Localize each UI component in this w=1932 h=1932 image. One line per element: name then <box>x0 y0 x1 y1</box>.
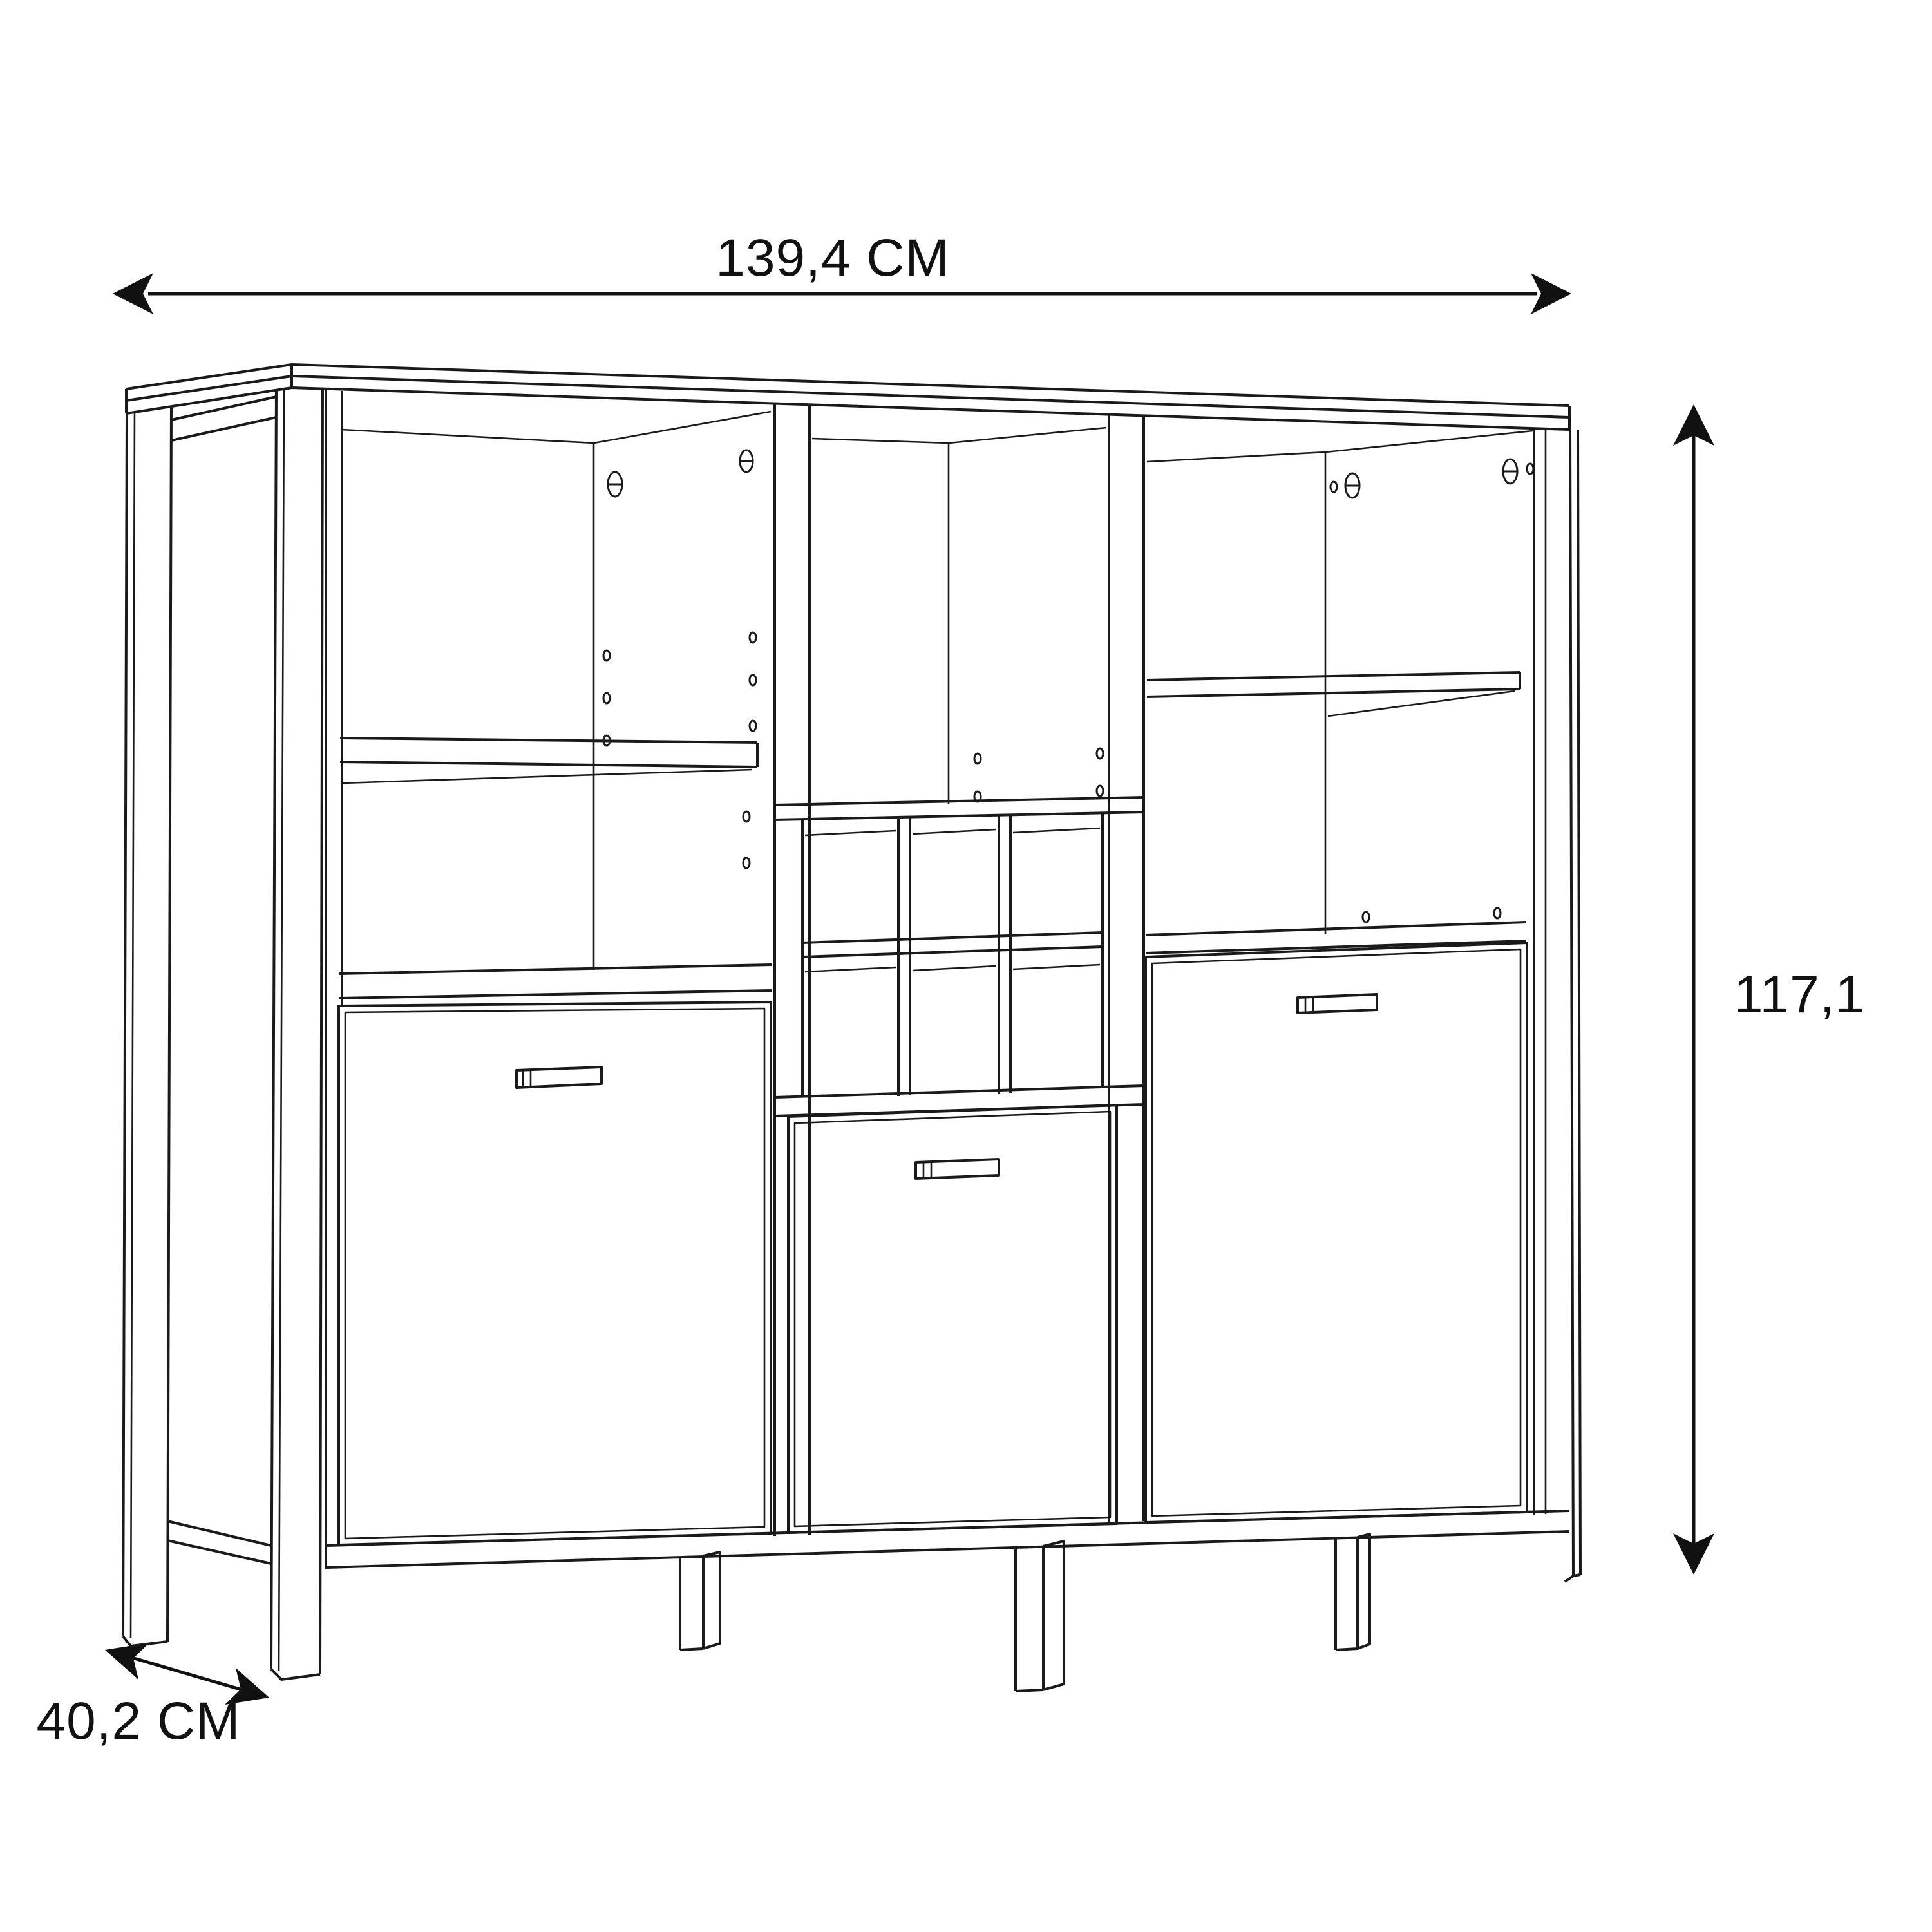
left-bottom-board-bottom <box>339 990 772 998</box>
foot-middle <box>1016 1541 1064 1691</box>
shelf-pin-hole <box>1331 482 1337 492</box>
cabinet-dimension-drawing: 139,4 CM 117,1 40,2 CM <box>0 0 1932 1932</box>
width-arrow-left-icon <box>113 273 153 314</box>
rack-cell-back-edge <box>805 967 896 972</box>
rack-middle-shelf-bottom <box>802 947 1103 957</box>
rack-cell-back-edge <box>1013 965 1100 969</box>
middle-door <box>788 1105 1117 1533</box>
right-side-foot <box>1565 1575 1580 1582</box>
left-shelf-top-edge <box>340 738 757 743</box>
frame-top-rail-upper <box>171 397 276 420</box>
rack-bottom-board-top <box>775 1086 1144 1097</box>
middle-compartment <box>812 428 1106 804</box>
shelf-pin-hole <box>1097 786 1103 796</box>
shelf-pin-hole <box>974 753 981 764</box>
foot-side-face <box>703 1552 720 1649</box>
right-shelf-top-edge <box>1147 672 1520 680</box>
left-door-inner-edge <box>345 1009 764 1539</box>
depth-dimension: 40,2 CM <box>37 1643 269 1750</box>
height-dimension: 117,1 <box>1673 404 1865 1575</box>
shelf-pin-hole <box>603 693 610 703</box>
frame-bottom-rail-lower <box>167 1540 271 1564</box>
handle-bar <box>916 1159 999 1179</box>
width-arrow-right-icon <box>1531 273 1571 314</box>
right-side-outer-back <box>1578 430 1580 1575</box>
shelf-pin-hole <box>750 675 756 685</box>
shelf-pin-hole <box>1097 748 1103 759</box>
rack-cell-back-edge <box>913 966 996 971</box>
left-compartment-back-top-edge <box>341 430 594 443</box>
left-frame <box>123 389 323 1680</box>
front-left-post-corner-edge <box>279 390 284 1671</box>
shelf-pin-hole <box>743 811 750 822</box>
frame-top-rail-lower <box>171 417 276 440</box>
right-door <box>1146 943 1527 1522</box>
foot-bottom <box>1016 1690 1043 1691</box>
left-door-handle <box>516 1067 601 1088</box>
right-door-outline <box>1146 943 1527 1522</box>
shelf-pin-hole <box>1363 912 1369 922</box>
foot-bottom <box>1336 1649 1358 1650</box>
depth-dimension-label: 40,2 CM <box>37 1692 241 1750</box>
rack-cell-back-edge <box>913 829 996 834</box>
right-shelf <box>1147 672 1520 716</box>
right-compartment <box>1146 431 1533 953</box>
right-door-inner-edge <box>1152 949 1520 1516</box>
width-dimension: 139,4 CM <box>113 229 1571 314</box>
left-shelf-bottom-edge <box>340 762 757 767</box>
right-side-outer-front <box>1570 430 1573 1576</box>
width-dimension-label: 139,4 CM <box>715 229 950 287</box>
right-shelf-underside <box>1328 691 1515 716</box>
shelf-pin-hole <box>743 858 750 868</box>
shelf-pin-hole <box>750 632 756 643</box>
rack-cell-back-edge <box>1013 828 1100 833</box>
middle-door-inner-edge <box>795 1112 1110 1526</box>
feet <box>680 1534 1370 1691</box>
right-shelf-bottom-edge <box>1147 689 1520 697</box>
middle-door-outline <box>788 1105 1117 1533</box>
left-compartment <box>339 412 772 998</box>
shelf-pin-hole <box>750 721 756 731</box>
rack-top-board-top <box>775 797 1144 805</box>
shelf-pin-hole <box>603 650 610 661</box>
wine-rack <box>775 797 1144 1116</box>
right-door-handle <box>1298 994 1377 1013</box>
bottom-rail-bottom <box>326 1531 1569 1567</box>
depth-dimension-line <box>132 1658 242 1690</box>
middle-compartment-side-top-edge <box>949 428 1106 443</box>
foot-bottom <box>680 1649 703 1650</box>
back-left-post-outer-edge <box>123 413 127 1636</box>
frame-bottom-rail-upper <box>167 1521 271 1546</box>
back-left-post-corner-edge <box>131 412 135 1638</box>
front-left-post-outer-edge <box>271 390 276 1669</box>
rack-top-board-bottom <box>775 812 1144 820</box>
technical-drawing-page: 139,4 CM 117,1 40,2 CM <box>0 0 1932 1932</box>
foot-left <box>680 1552 720 1650</box>
front-left-post-inner-edge <box>320 389 323 1674</box>
left-shelf <box>340 738 757 783</box>
left-shelf-underside <box>343 770 752 783</box>
back-left-post-foot <box>123 1636 167 1646</box>
left-door-outline <box>339 1002 771 1545</box>
shelf-pin-hole <box>1494 908 1501 918</box>
height-dimension-label: 117,1 <box>1734 965 1865 1024</box>
left-bottom-board-top <box>339 965 772 974</box>
handle-bar <box>516 1067 601 1088</box>
right-bottom-board-top <box>1146 922 1526 935</box>
left-compartment-side-top-edge <box>594 412 771 443</box>
middle-door-handle <box>916 1159 999 1179</box>
back-left-post-inner-edge <box>167 406 171 1642</box>
foot-right <box>1336 1534 1370 1650</box>
rack-cell-back-edge <box>805 831 896 835</box>
shelf-pin-hole <box>1527 464 1533 474</box>
carcass <box>326 390 1580 1582</box>
middle-compartment-back-top-edge <box>812 439 949 443</box>
foot-side-face <box>1043 1541 1064 1690</box>
handle-bar <box>1298 994 1377 1013</box>
front-left-post-foot <box>271 1669 320 1680</box>
left-door <box>339 1002 771 1545</box>
foot-side-face <box>1358 1534 1370 1649</box>
rack-middle-shelf-top <box>802 933 1103 943</box>
right-compartment-back-top-edge <box>1147 452 1325 462</box>
right-compartment-side-top-edge <box>1325 431 1533 452</box>
